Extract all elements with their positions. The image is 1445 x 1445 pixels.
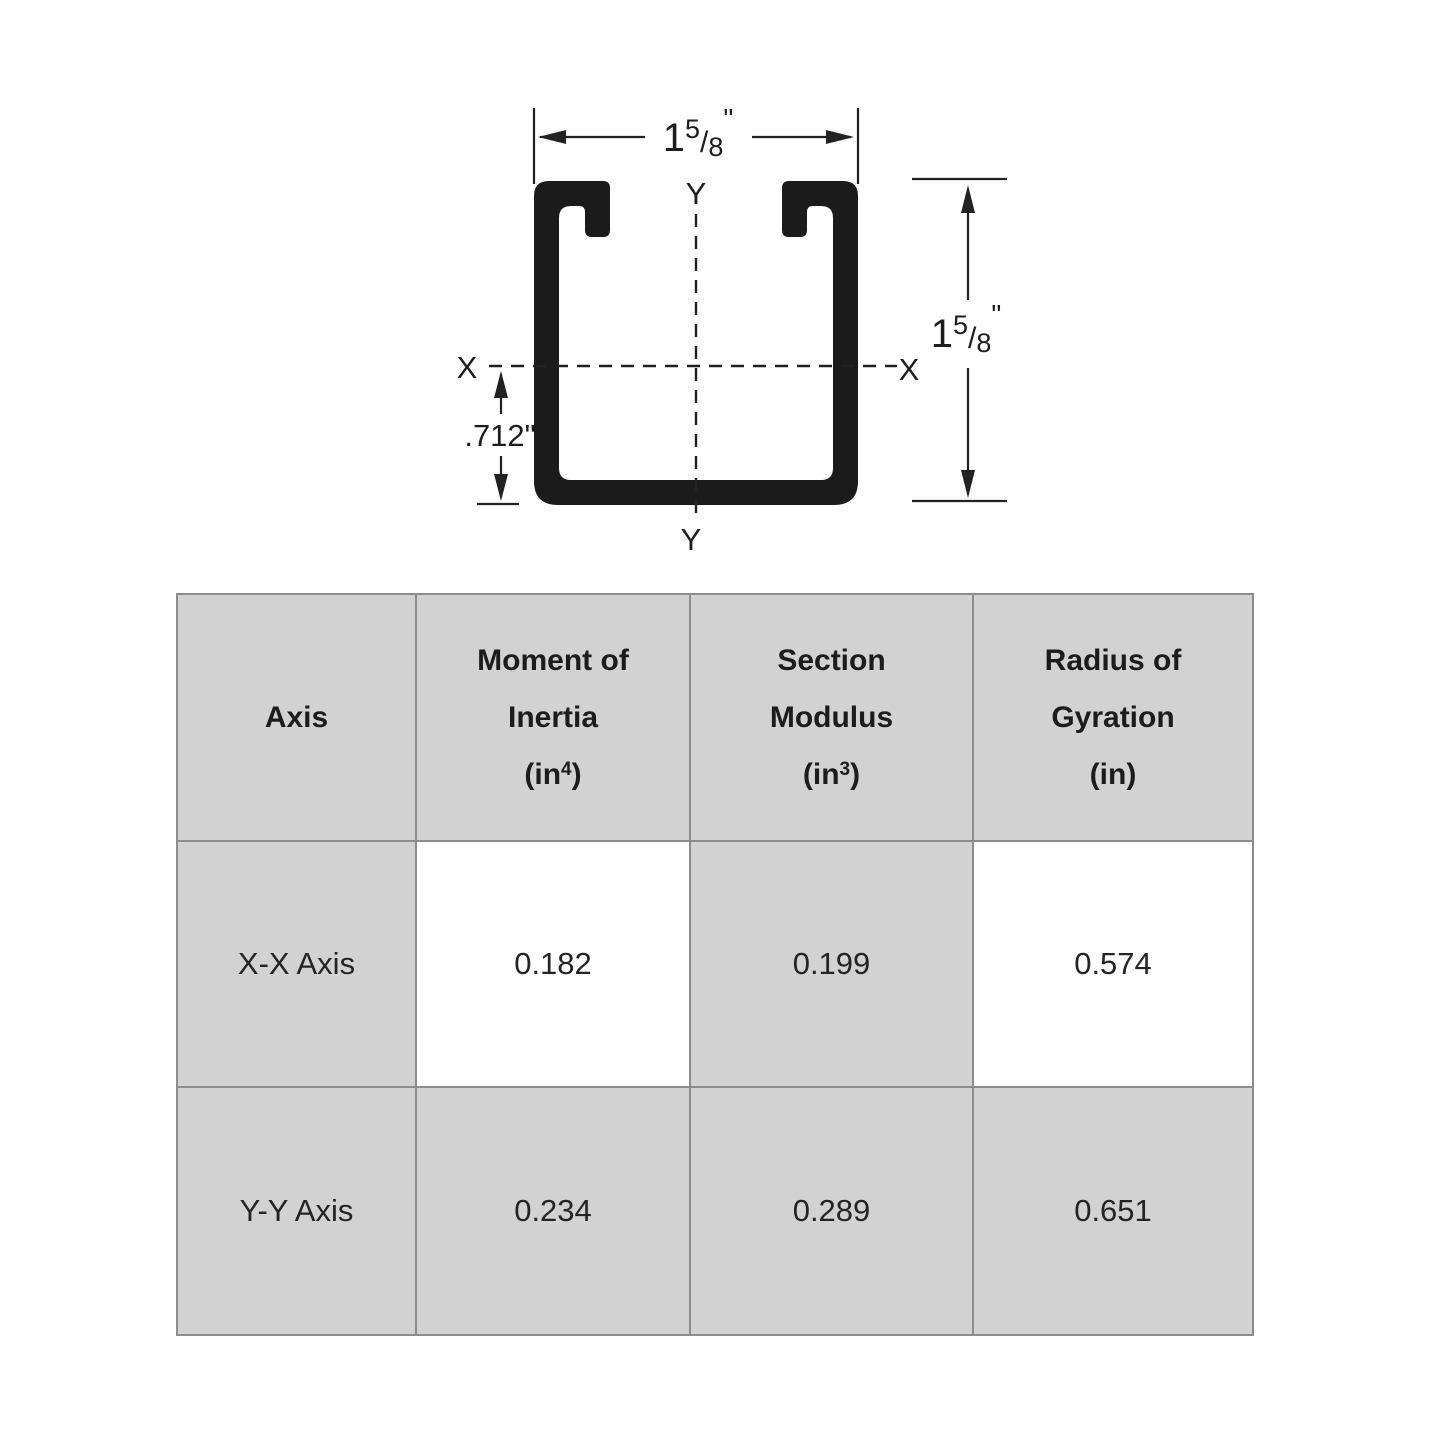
arrow-left-icon [538, 130, 566, 144]
cell-yy-radius-of-gyration: 0.651 [974, 1088, 1252, 1334]
cell-yy-section-modulus: 0.289 [691, 1088, 974, 1334]
width-dim-label: 15/8" [663, 103, 734, 162]
cell-xx-radius-of-gyration: 0.574 [974, 842, 1252, 1088]
cell-xx-axis-label: X-X Axis [178, 842, 417, 1088]
height-dim-label: 15/8" [931, 299, 1002, 358]
cell-yy-axis-label: Y-Y Axis [178, 1088, 417, 1334]
height-dimension [912, 179, 1007, 501]
cell-xx-moment-of-inertia: 0.182 [417, 842, 691, 1088]
header-radius-of-gyration: Radius of Gyration (in) [974, 595, 1252, 842]
header-axis-label: Axis [265, 703, 328, 733]
arrow-down-icon [494, 474, 508, 501]
section-properties-table: Axis Moment of Inertia (in4) Section Mod… [176, 593, 1254, 1336]
header-axis: Axis [178, 595, 417, 842]
offset-dim-label: .712" [464, 418, 535, 453]
header-section-modulus: Section Modulus (in3) [691, 595, 974, 842]
arrow-up-icon [494, 371, 508, 398]
x-axis-label-left: X [457, 350, 478, 385]
arrow-down-icon [961, 470, 975, 498]
y-axis-label-bottom: Y [681, 522, 702, 557]
cell-xx-section-modulus: 0.199 [691, 842, 974, 1088]
header-moment-of-inertia: Moment of Inertia (in4) [417, 595, 691, 842]
arrow-up-icon [961, 185, 975, 213]
arrow-right-icon [826, 130, 854, 144]
page: X X Y Y 15/8" 15/8" [0, 0, 1445, 1445]
strut-channel-diagram: X X Y Y 15/8" 15/8" [0, 0, 1445, 580]
y-axis-label-top: Y [686, 176, 707, 211]
x-axis-label-right: X [899, 352, 920, 387]
cell-yy-moment-of-inertia: 0.234 [417, 1088, 691, 1334]
